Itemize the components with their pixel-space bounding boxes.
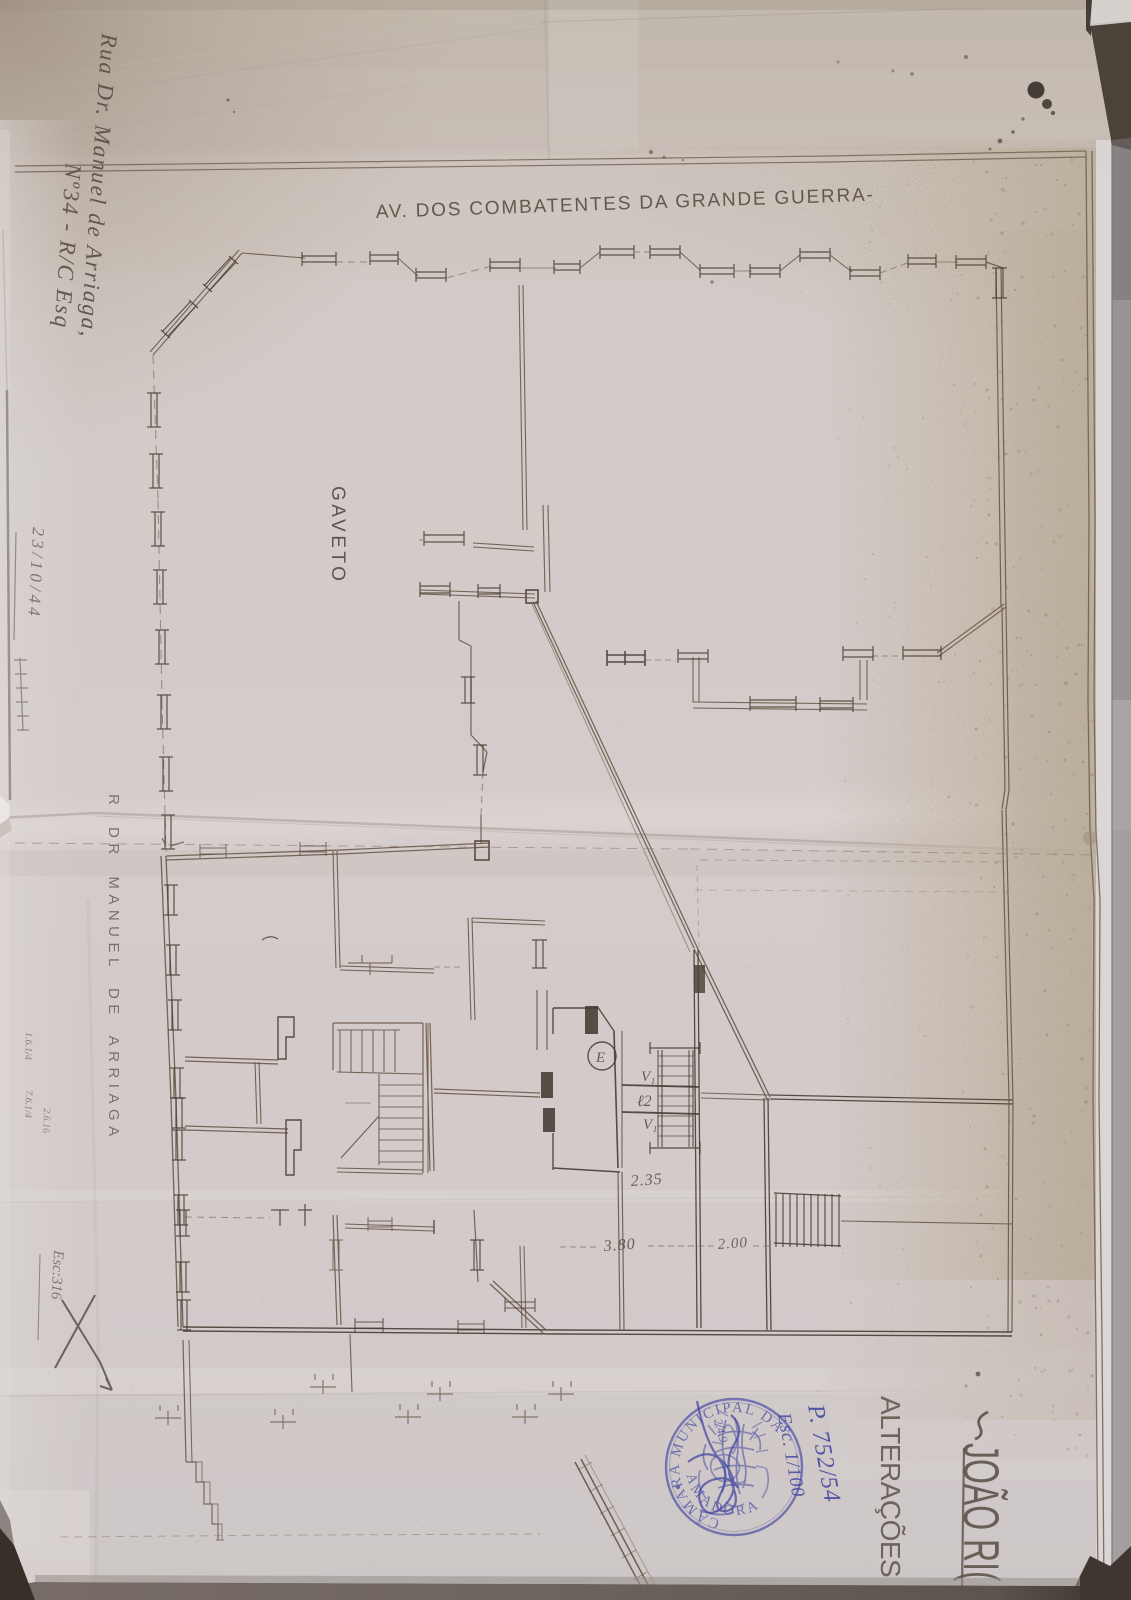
svg-text:Esc:316: Esc:316 — [47, 1249, 66, 1300]
svg-text:ℓ2: ℓ2 — [637, 1093, 652, 1110]
svg-text:V₁: V₁ — [641, 1069, 655, 1085]
svg-text:1.6.1/4: 1.6.1/4 — [22, 1032, 34, 1060]
svg-text:3.80: 3.80 — [602, 1236, 636, 1255]
svg-text:ALTERAÇÕES ,: ALTERAÇÕES , — [875, 1396, 906, 1592]
svg-text:2.6.16: 2.6.16 — [40, 1108, 52, 1133]
svg-text:V₁: V₁ — [643, 1117, 657, 1133]
svg-text:R DR MANUEL DE ARRIAGA: R DR MANUEL DE ARRIAGA — [105, 794, 122, 1142]
svg-text:2.00: 2.00 — [717, 1235, 748, 1253]
svg-text:GAVETO: GAVETO — [327, 486, 348, 584]
svg-text:E: E — [595, 1050, 605, 1066]
svg-text:2.35: 2.35 — [630, 1171, 663, 1190]
svg-text:7.6.1/4: 7.6.1/4 — [22, 1090, 34, 1118]
